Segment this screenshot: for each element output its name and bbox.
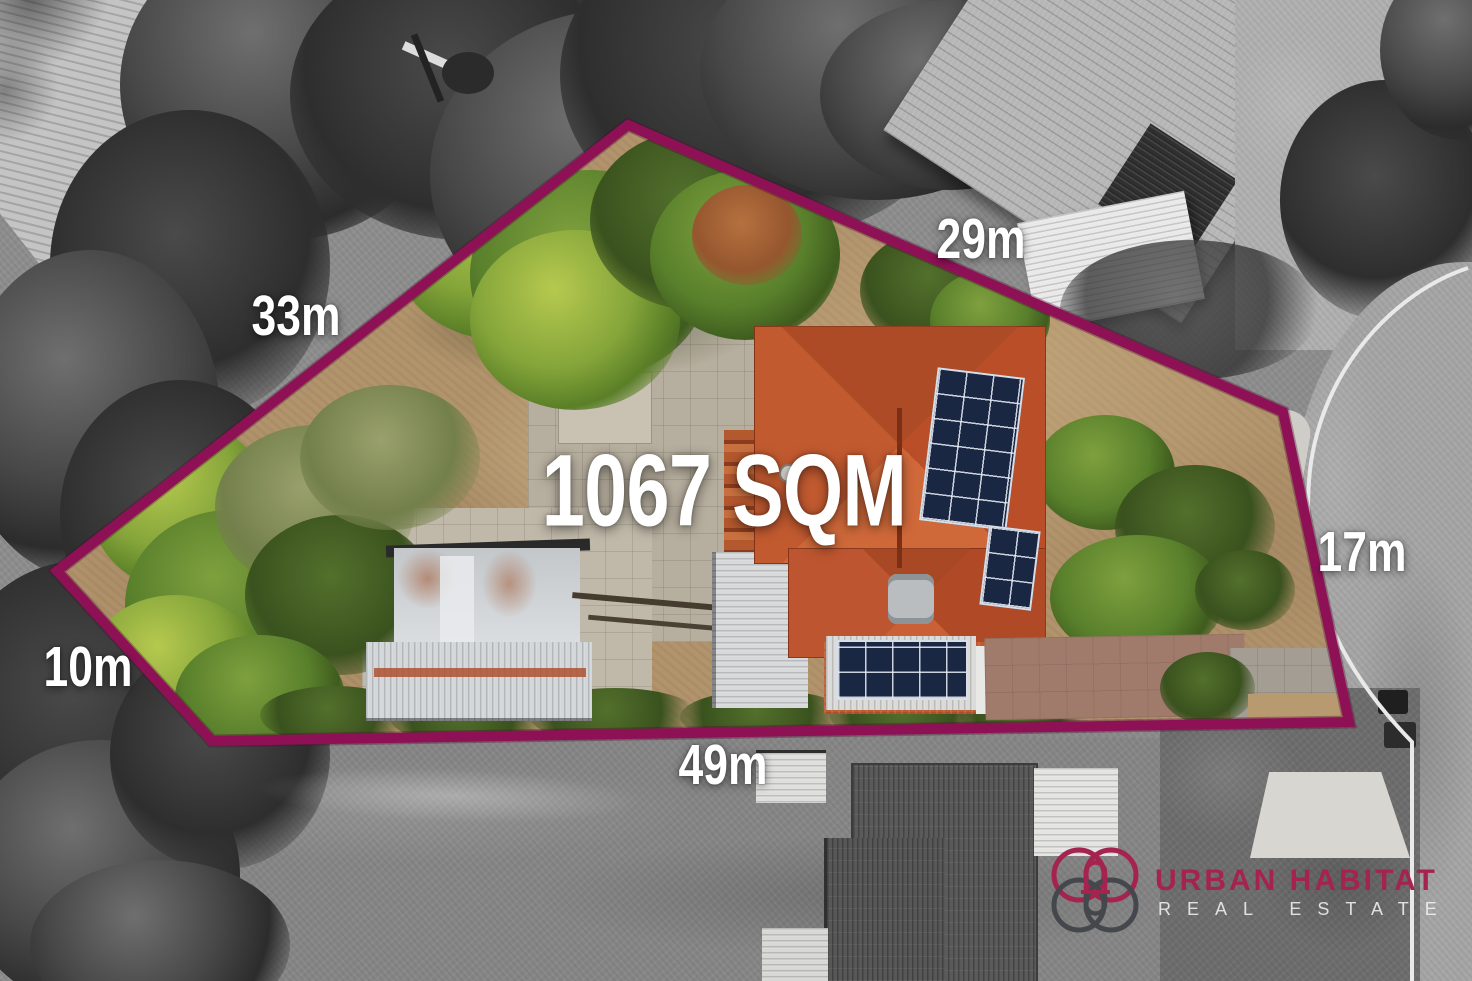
area-label: 1067 SQM (542, 433, 906, 550)
dimension-label-northeast: 29m (937, 206, 1026, 272)
dimension-label-south: 49m (679, 732, 768, 798)
aerial-photo: 33m 29m 17m 10m 49m 1067 SQM URBAN HABIT… (0, 0, 1472, 981)
dimension-label-east: 17m (1318, 519, 1407, 585)
dimension-label-northwest: 33m (252, 283, 341, 349)
dimension-label-southwest: 10m (44, 634, 133, 700)
brand-tagline: REAL ESTATE (1158, 899, 1453, 920)
logo-mark-icon (1048, 842, 1144, 938)
brand-name: URBAN HABITAT (1155, 864, 1438, 898)
